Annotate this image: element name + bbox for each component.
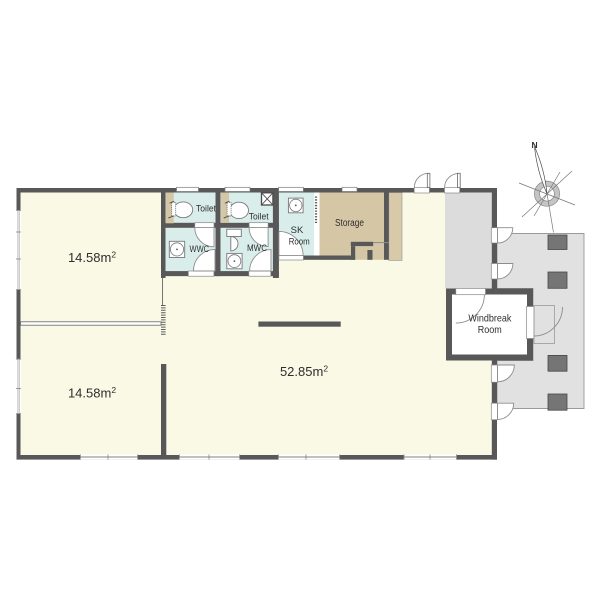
svg-text:Windbreak: Windbreak [468, 313, 512, 324]
svg-text:WWC: WWC [190, 244, 210, 255]
svg-text:14.58m2: 14.58m2 [68, 385, 116, 401]
svg-text:N: N [532, 140, 538, 150]
svg-text:SK: SK [291, 225, 304, 236]
svg-text:Room: Room [289, 237, 310, 248]
svg-text:Toilet: Toilet [249, 212, 269, 223]
svg-text:14.58m2: 14.58m2 [68, 250, 116, 266]
svg-text:52.85m2: 52.85m2 [280, 364, 328, 380]
svg-text:Room: Room [478, 325, 502, 336]
svg-text:Storage: Storage [335, 218, 364, 229]
svg-text:MWC: MWC [247, 243, 267, 254]
svg-text:Toilet: Toilet [196, 203, 216, 214]
